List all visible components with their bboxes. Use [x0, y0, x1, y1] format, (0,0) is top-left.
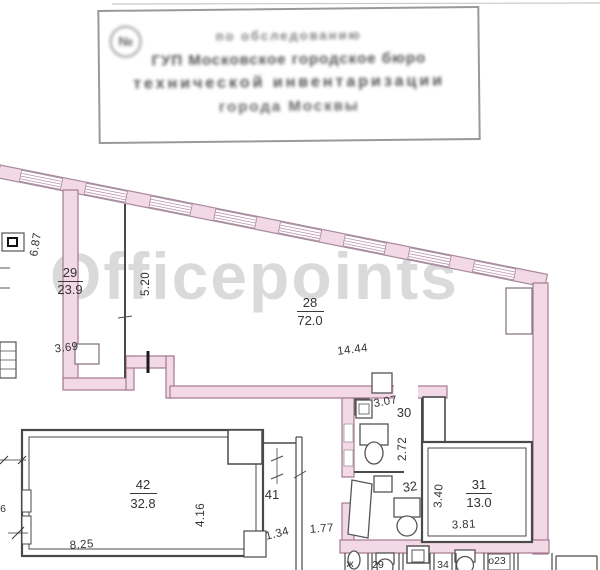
strip-label-2: 29 [372, 559, 384, 570]
dim-1444: 14.44 [337, 342, 369, 358]
toilet-bowl-strip-3 [457, 557, 474, 570]
room-42-left-jog-2 [22, 516, 31, 544]
left-edge-label: 6 [0, 503, 6, 515]
dim-520: 5.20 [140, 272, 152, 296]
dim-134: 1.34 [264, 525, 290, 542]
strip-label-3: 34 [437, 559, 449, 570]
sink-room32 [374, 476, 392, 492]
floor-plan-scan: Officepoints [0, 0, 600, 570]
dim-381: 3.81 [452, 518, 477, 531]
riser-box-2 [344, 450, 353, 466]
room-41-number: 41 [265, 487, 279, 502]
room-42-number: 42 [136, 477, 150, 492]
riser-box-1 [344, 424, 353, 442]
stamp-line-3: технической инвентаризации [100, 72, 478, 94]
room-42-niche [228, 430, 262, 464]
room-31-area: 13.0 [466, 495, 491, 510]
strip-label-4: о23 [488, 555, 506, 567]
room-29-area: 23.9 [57, 282, 82, 297]
dim-825: 8.25 [69, 538, 94, 552]
room-42-left-jog-1 [22, 490, 31, 512]
stamp-line-4: города Москвы [100, 96, 478, 117]
dim-416: 4.16 [195, 503, 207, 527]
pilaster-niche [506, 288, 532, 334]
room-31-number: 31 [472, 477, 486, 492]
room-29-number: 29 [63, 265, 77, 280]
toilet-bowl-room32 [397, 516, 417, 536]
toilet-bowl-room30 [365, 442, 383, 464]
door-leaf-room32 [348, 480, 372, 538]
room29-corner-niche [75, 344, 99, 364]
room-28-number: 28 [303, 295, 317, 310]
window-band-wall [0, 165, 547, 287]
balcony-fragment [2, 233, 24, 251]
dim-177: 1.77 [309, 522, 334, 536]
door-gap-room30 [394, 385, 418, 399]
room-30-number: 30 [397, 405, 411, 420]
stamp-line-1: по обследованию [100, 26, 478, 45]
urinal-bowl [412, 550, 424, 562]
dim-687: 6.87 [28, 232, 44, 258]
bti-stamp: № по обследованию ГУП Московское городск… [97, 6, 480, 144]
strip-label-1: ж [346, 558, 353, 570]
cupboard-fixture [244, 531, 266, 557]
stamp-line-2: ГУП Московское городское бюро [100, 49, 478, 70]
toilet-tank-room32 [394, 498, 420, 517]
scan-edge-line [112, 3, 600, 4]
stamp-text: по обследованию ГУП Московское городское… [99, 14, 478, 117]
shaft-box [372, 373, 392, 393]
room-32-number: 32 [402, 478, 418, 495]
duct-column [423, 397, 445, 443]
bottom-wall-room29 [63, 378, 132, 390]
room-28-area: 72.0 [297, 313, 322, 328]
dim-272: 2.72 [397, 437, 409, 461]
right-wall [533, 283, 548, 554]
dim-340: 3.40 [432, 484, 445, 509]
room-42-area: 32.8 [130, 496, 155, 511]
